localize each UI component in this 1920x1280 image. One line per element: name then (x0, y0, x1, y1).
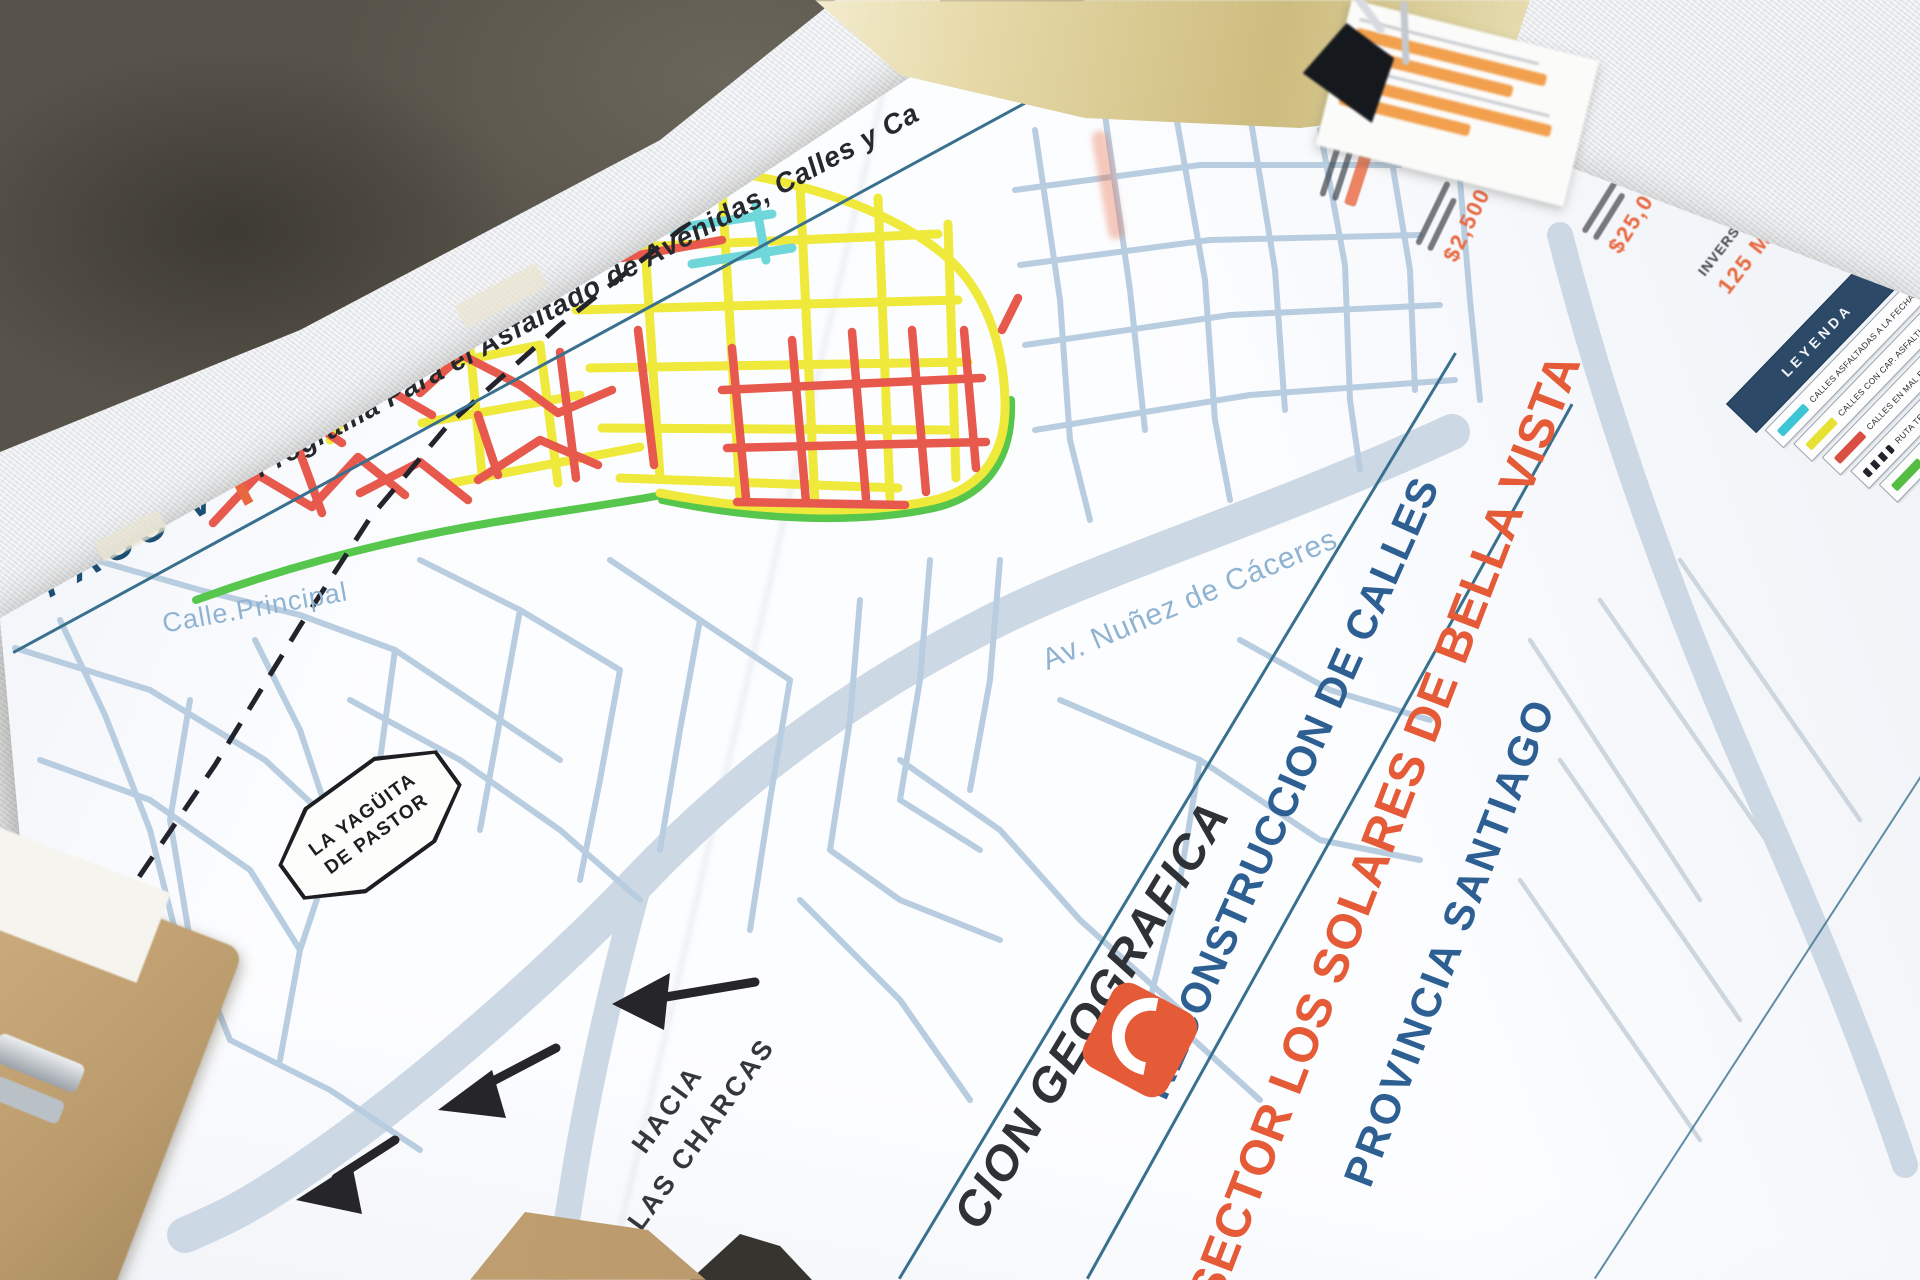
photo-scene: PACC V | Programa Para el Asfaltado de A… (0, 0, 1920, 1280)
map-sheet: PACC V | Programa Para el Asfaltado de A… (0, 0, 1920, 1280)
red-stamp (599, 191, 667, 239)
